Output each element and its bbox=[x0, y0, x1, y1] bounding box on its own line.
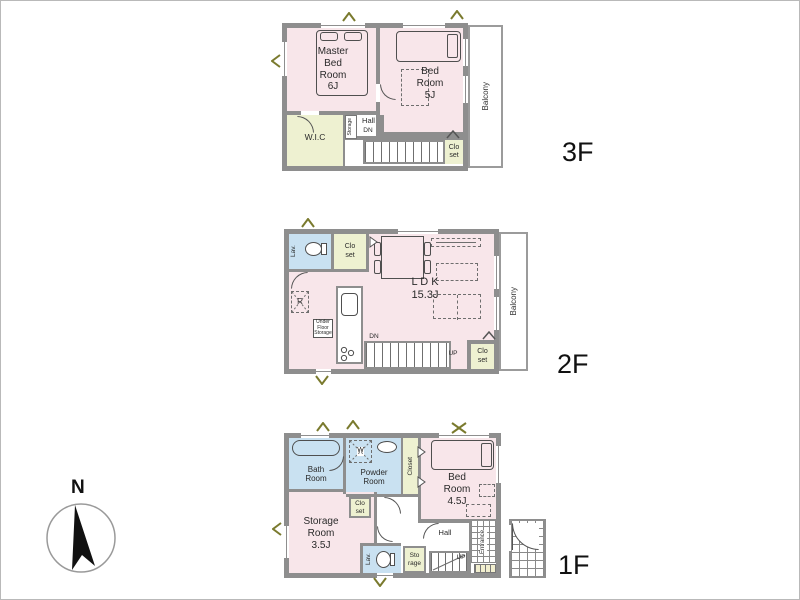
balcony-2f-label: Balcony bbox=[509, 287, 518, 315]
pillow-icon bbox=[320, 32, 338, 41]
stairs-2f bbox=[364, 341, 451, 369]
closet-door-fold-icon bbox=[482, 331, 496, 340]
window-balcony-door bbox=[463, 39, 468, 66]
window bbox=[282, 42, 287, 76]
window bbox=[496, 446, 501, 483]
vent-mark-x-icon bbox=[451, 422, 467, 434]
kitchen-sink-icon bbox=[341, 293, 358, 316]
window bbox=[403, 23, 445, 28]
wall bbox=[343, 438, 346, 494]
vent-mark-icon bbox=[342, 12, 356, 22]
floor-label-2f: 2F bbox=[557, 349, 589, 380]
pillow-icon bbox=[447, 34, 458, 58]
vent-mark-icon bbox=[450, 10, 464, 20]
closet-3f-label: Clo set bbox=[449, 144, 460, 161]
floor-label-3f: 3F bbox=[562, 137, 594, 168]
room-storage-small: Sto rage bbox=[403, 546, 426, 573]
bedroom-45j-label: Bed Room 4.5J bbox=[427, 472, 487, 507]
floor-plan-page: Balcony Storage Clo set bbox=[0, 0, 800, 600]
storage-small-label: Sto rage bbox=[408, 552, 421, 567]
window bbox=[321, 23, 365, 28]
entrance-porch bbox=[509, 519, 546, 578]
floor-1f-plan: Closet Bath Room W Powder Room B bbox=[284, 433, 501, 578]
ldk-label: L D K 15.3J bbox=[392, 276, 458, 302]
balcony-2f: Balcony bbox=[499, 232, 528, 371]
room-lavatory-1f: Lav. bbox=[363, 546, 401, 573]
vent-mark-icon bbox=[373, 577, 387, 587]
stairs-up-label: UP bbox=[452, 554, 470, 562]
wall bbox=[331, 234, 334, 269]
storage-room-label: Storage Room 3.5J bbox=[291, 516, 351, 551]
compass: N bbox=[39, 467, 134, 582]
toilet-icon bbox=[376, 551, 391, 568]
x-dash-lines bbox=[350, 441, 371, 462]
closet-tall-label: Closet bbox=[407, 457, 415, 475]
closet-small-label: Clo set bbox=[355, 500, 365, 515]
tv-board-icon bbox=[431, 238, 481, 247]
toilet-tank-icon bbox=[321, 243, 327, 255]
floor-label-1f: 1F bbox=[558, 550, 590, 581]
closet-door-fold-icon bbox=[417, 476, 426, 488]
wall bbox=[401, 438, 403, 494]
room-closet-2f-bottom: Clo set bbox=[471, 344, 494, 369]
washer-box-icon: W bbox=[349, 440, 372, 463]
wall bbox=[374, 492, 377, 543]
window bbox=[316, 369, 331, 374]
entrance-area: Entrance bbox=[471, 521, 496, 563]
sink-icon bbox=[377, 441, 397, 453]
chair-icon bbox=[424, 260, 431, 274]
vent-mark-icon bbox=[316, 422, 330, 432]
door-fold-icon bbox=[369, 236, 378, 248]
hall-3f-label: Hall bbox=[357, 117, 380, 126]
vent-mark-icon bbox=[315, 375, 329, 385]
under-floor-storage-label: Under Floor Storage bbox=[314, 320, 332, 338]
stairs-down-label: DN bbox=[359, 127, 377, 135]
room-closet-2f-top: Clo set bbox=[334, 234, 366, 269]
pillow-icon bbox=[344, 32, 362, 41]
powder-room-label: Powder Room bbox=[349, 468, 399, 487]
window-balcony-door bbox=[494, 297, 499, 330]
wall bbox=[289, 489, 346, 492]
lavatory-1f-label: Lav. bbox=[365, 549, 373, 570]
toilet-tank-icon bbox=[390, 553, 395, 566]
wic-label: W.I.C bbox=[287, 132, 343, 142]
chair-icon bbox=[424, 242, 431, 256]
entrance-label: Entrance bbox=[480, 530, 487, 554]
balcony-3f-label: Balcony bbox=[481, 82, 490, 110]
door-opening bbox=[301, 111, 319, 115]
stove-icon bbox=[338, 345, 358, 365]
stairs-up-label: UP bbox=[444, 350, 462, 358]
floor-2f-plan: Clo set Lav. R Under Floor Storage DN UP bbox=[284, 229, 499, 374]
toilet-icon bbox=[305, 242, 322, 256]
x-dash-lines bbox=[292, 292, 308, 312]
north-label: N bbox=[71, 477, 85, 498]
tv-board-line bbox=[436, 242, 476, 243]
bathtub-icon bbox=[292, 440, 340, 456]
room-closet-small: Clo set bbox=[349, 497, 371, 518]
floor-3f-plan: Storage Clo set Master Bed Room 6J Bed R… bbox=[282, 23, 468, 171]
bedroom-5j-label: Bed Room 5J bbox=[400, 66, 460, 101]
under-floor-storage: Under Floor Storage bbox=[313, 319, 333, 338]
window-balcony-door bbox=[463, 76, 468, 103]
north-arrow-icon bbox=[72, 505, 95, 570]
room-closet-tall: Closet bbox=[403, 438, 418, 494]
storage-strip-label: Storage bbox=[348, 118, 354, 136]
window bbox=[398, 229, 438, 234]
window bbox=[301, 433, 329, 438]
master-bedroom-label: Master Bed Room 6J bbox=[297, 46, 369, 93]
vent-mark-icon bbox=[301, 218, 315, 228]
shoe-cabinet-icon bbox=[474, 564, 496, 573]
pillow-icon bbox=[481, 443, 492, 467]
window-balcony-door bbox=[494, 256, 499, 289]
window bbox=[284, 526, 289, 558]
storage-strip-3f: Storage bbox=[345, 115, 357, 139]
entry-door-arc-icon bbox=[512, 523, 539, 550]
stairs-down-label: DN bbox=[365, 333, 383, 341]
chair-icon bbox=[374, 260, 381, 274]
closet-door-fold-icon bbox=[446, 130, 460, 139]
lavatory-2f-label: Lav. bbox=[290, 238, 298, 265]
closet-door-fold-icon bbox=[417, 446, 426, 458]
dining-table-icon bbox=[381, 236, 424, 279]
wall bbox=[289, 269, 369, 272]
vent-mark-icon bbox=[271, 54, 281, 68]
closet-2f-bottom-label: Clo set bbox=[477, 348, 488, 365]
refrigerator-box-icon: R bbox=[291, 291, 309, 313]
closet-2f-top-label: Clo set bbox=[345, 243, 356, 260]
vent-mark-icon bbox=[272, 522, 282, 536]
balcony-3f: Balcony bbox=[468, 25, 503, 168]
room-closet-3f: Clo set bbox=[445, 140, 463, 164]
vent-mark-icon bbox=[346, 420, 360, 430]
stairs-3f bbox=[363, 140, 445, 164]
